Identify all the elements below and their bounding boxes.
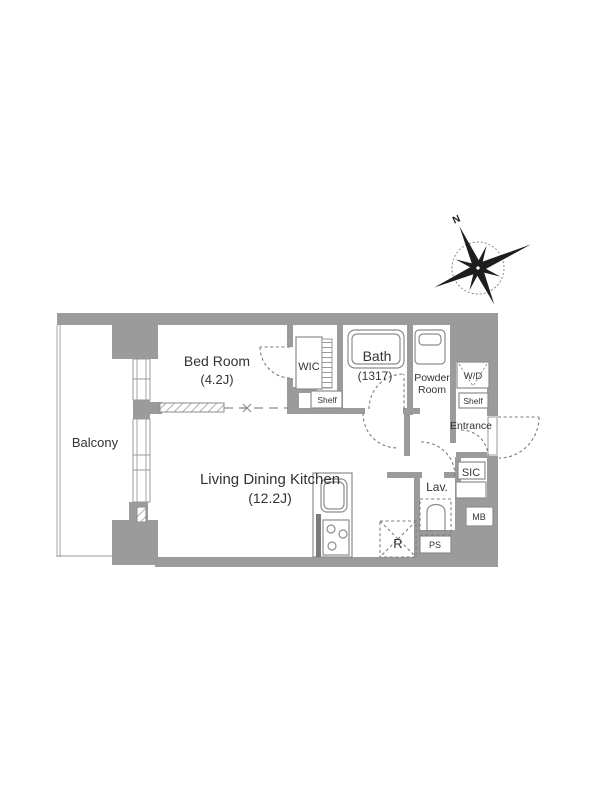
- ldk-size: (12.2J): [248, 490, 292, 506]
- front-door-arc: [499, 417, 539, 458]
- wall-lav-top-a: [414, 472, 422, 478]
- bath-label: Bath: [363, 348, 392, 364]
- wall-bath-powder: [407, 325, 413, 415]
- entrance-label: Entrance: [450, 420, 492, 432]
- sliding-partition: [160, 403, 288, 412]
- fixtures: [296, 330, 497, 557]
- floor-plan-page: Balcony Bed Room (4.2J) Living Dining Ki…: [0, 0, 600, 800]
- window-upper: [133, 359, 150, 400]
- washer-dryer-label: W/D: [464, 371, 483, 382]
- wall-lav-left: [414, 478, 420, 532]
- kitchen-divider-wall: [316, 514, 321, 557]
- bedroom-size: (4.2J): [200, 372, 233, 387]
- vanity-basin: [419, 334, 441, 345]
- window-lower: [133, 419, 150, 502]
- wic-hanger-rack: [322, 339, 332, 388]
- powder-room-label-1: Powder: [414, 372, 450, 384]
- compass-north-label: N: [451, 214, 462, 227]
- lav-door-arc: [421, 442, 455, 476]
- wall-above-wd: [450, 325, 490, 362]
- wall-entrance-sic: [456, 452, 487, 458]
- powder-room-label-2: Room: [418, 384, 446, 396]
- bath-size: (1317): [358, 369, 393, 383]
- wic-door-arc: [260, 347, 290, 378]
- drain-pipe-symbol: [137, 507, 146, 522]
- floor-plan-drawing: Balcony Bed Room (4.2J) Living Dining Ki…: [0, 0, 600, 800]
- compass: N: [411, 191, 548, 324]
- sic-box-lower: [456, 482, 486, 498]
- wall-bedroom-wic-b: [287, 378, 293, 394]
- toilet-bowl: [427, 505, 445, 532]
- wall-pillar-top-left: [112, 323, 158, 359]
- lavatory-label: Lav.: [426, 480, 448, 494]
- bedroom-label: Bed Room: [184, 353, 250, 369]
- sic-label: SIC: [462, 467, 480, 479]
- pipe-space-label: PS: [429, 540, 441, 550]
- refrigerator-label: R: [393, 536, 402, 551]
- meter-box-label: MB: [472, 512, 486, 522]
- balcony-label: Balcony: [72, 435, 119, 450]
- powder-door-arc: [363, 413, 398, 448]
- walls: [57, 313, 498, 567]
- wall-bedroom-wic-a: [287, 325, 293, 347]
- wic-shelf-label: Shelf: [317, 395, 337, 405]
- wall-corridor-jamb: [403, 408, 420, 414]
- ldk-label: Living Dining Kitchen: [200, 471, 340, 488]
- wall-ldk-hall: [404, 414, 410, 456]
- partition-track: [160, 403, 224, 412]
- entry-shelf-label: Shelf: [463, 396, 483, 406]
- window-wall: [133, 359, 150, 522]
- wall-window-mid-block: [133, 400, 150, 419]
- wic-label: WIC: [298, 361, 319, 373]
- wall-corridor-a: [287, 408, 365, 414]
- wall-pillar-bottom-left: [112, 520, 158, 565]
